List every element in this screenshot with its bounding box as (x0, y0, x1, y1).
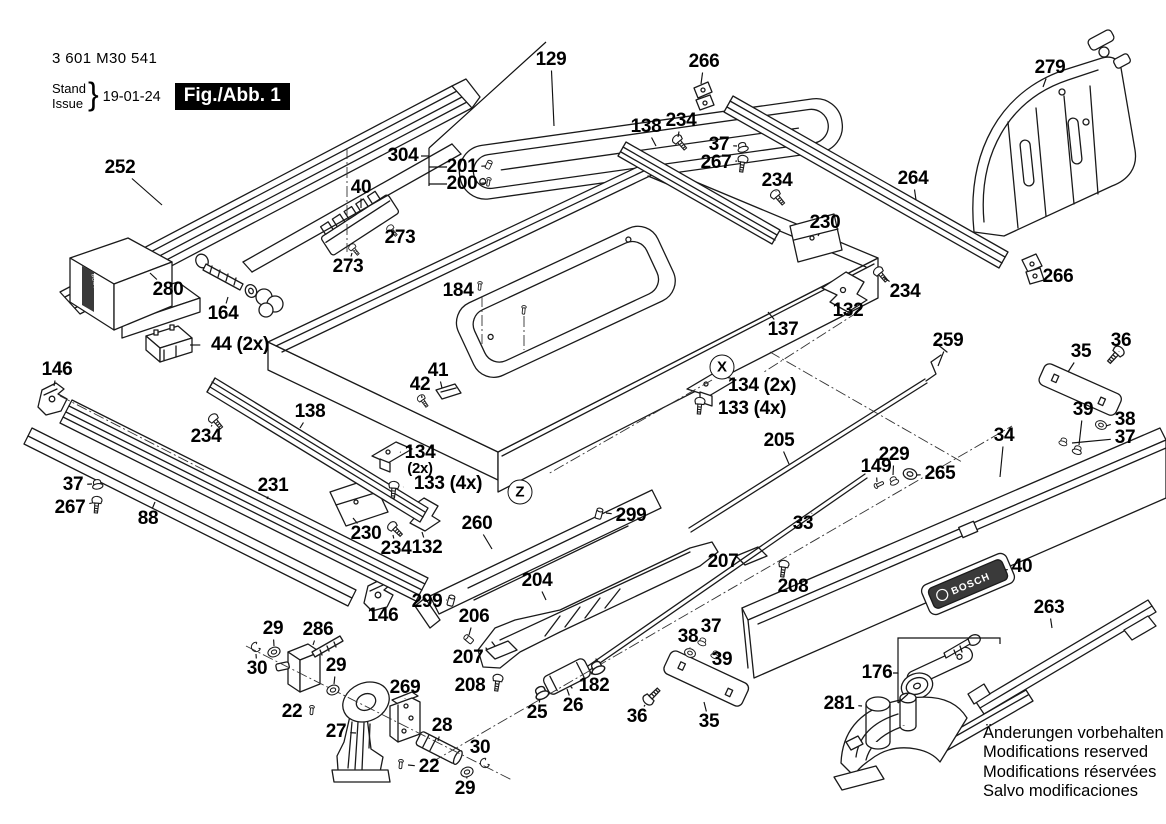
part-label-35: 35 (699, 713, 720, 731)
part-label-208: 208 (455, 677, 486, 695)
part-label-28: 28 (432, 717, 453, 735)
leader-252 (132, 179, 162, 206)
part-label-279: 279 (1035, 59, 1066, 77)
part-label-200: 200 (447, 175, 478, 193)
part-label-38: 38 (678, 628, 699, 646)
part-label-204: 204 (522, 572, 553, 590)
part-clamp-146-left (38, 383, 67, 415)
leader-205 (784, 452, 789, 465)
part-label-266: 266 (689, 53, 720, 71)
part-label-22: 22 (419, 758, 440, 776)
leader-267 (89, 503, 92, 504)
part-label-36: 36 (1111, 332, 1132, 350)
part-label-266: 266 (1043, 268, 1074, 286)
hw-29-washer (267, 645, 282, 658)
part-label-206: 206 (459, 608, 490, 626)
part-label-39: 39 (712, 651, 733, 669)
leader-138 (300, 423, 303, 429)
leader-206 (469, 628, 471, 636)
part-badge-44 (146, 325, 192, 362)
hw-36-screw (641, 685, 663, 707)
hw-149-pin (873, 480, 884, 489)
title-block: 3 601 M30 541 Stand Issue } 19-01-24 Fig… (52, 50, 290, 117)
leader-34 (1000, 447, 1003, 478)
disclaimer-line-fr: Modifications réservées (983, 763, 1164, 782)
part-label-34: 34 (994, 427, 1015, 445)
hw-22-pin (309, 705, 315, 715)
disclaimer-line-de: Änderungen vorbehalten (983, 724, 1164, 743)
part-number: 3 601 M30 541 (52, 50, 290, 67)
part-label-29: 29 (263, 620, 284, 638)
hw-38-washer (1094, 419, 1107, 430)
leader-29 (334, 677, 335, 685)
part-label-132: 132 (833, 302, 864, 320)
hw-29-washer (460, 765, 475, 778)
part-label-39: 39 (1073, 401, 1094, 419)
hw-265-washer (902, 467, 918, 481)
hw-206-grub (463, 634, 474, 644)
callout-X: X (710, 355, 735, 380)
part-label-37: 37 (63, 476, 84, 494)
part-label-304: 304 (388, 147, 419, 165)
part-label-280: 280 (153, 281, 184, 299)
part-label-265: 265 (925, 465, 956, 483)
leader-35 (1068, 363, 1074, 373)
part-label-30: 30 (470, 739, 491, 757)
part-label-234: 234 (762, 172, 793, 190)
callout-Z: Z (508, 480, 533, 505)
part-label-26: 26 (563, 697, 584, 715)
part-clamp-266-right (1022, 254, 1044, 284)
part-label-207: 207 (453, 649, 484, 667)
part-label-234: 234 (666, 112, 697, 130)
leader-260 (483, 535, 492, 550)
part-label-27: 27 (326, 723, 347, 741)
leader-286 (313, 641, 315, 646)
part-label-182: 182 (579, 677, 610, 695)
part-label-37: 37 (701, 618, 722, 636)
part-label-299: 299 (616, 507, 647, 525)
diagram-page: BOSCH (0, 0, 1166, 824)
part-label-29: 29 (326, 657, 347, 675)
part-clamp-266-top (694, 82, 714, 110)
part-label-234: 234 (381, 540, 412, 558)
hw-267-screw (91, 496, 102, 513)
part-label-286: 286 (303, 621, 334, 639)
part-label-40: 40 (351, 179, 372, 197)
leader-266 (701, 73, 703, 85)
hw-22-pin (398, 759, 404, 769)
hw-208-screw (491, 674, 503, 692)
leader-129 (551, 71, 554, 127)
part-label-267: 267 (55, 499, 86, 517)
part-label-22: 22 (282, 703, 303, 721)
leader-263 (1051, 619, 1052, 629)
part-label-205: 205 (764, 432, 795, 450)
part-label-1334x: 133 (4x) (718, 400, 786, 418)
hw-208-screw (777, 560, 789, 578)
part-label-208: 208 (778, 578, 809, 596)
part-label-267: 267 (701, 154, 732, 172)
part-label-273: 273 (385, 229, 416, 247)
part-label-164: 164 (208, 305, 239, 323)
part-hook-259 (926, 355, 941, 381)
hw-39-nut (1072, 444, 1084, 455)
part-label-138: 138 (631, 118, 662, 136)
hw-133-screw (694, 397, 705, 414)
part-bracket-269 (390, 692, 420, 742)
brace-glyph: } (88, 76, 99, 113)
part-label-230: 230 (810, 214, 841, 232)
leader-39 (1079, 421, 1082, 446)
disclaimer-line-en: Modifications reserved (983, 743, 1164, 762)
part-label-1334x: 133 (4x) (414, 475, 482, 493)
part-label-264: 264 (898, 170, 929, 188)
hw-37-nut (697, 637, 707, 647)
part-label-149: 149 (861, 458, 892, 476)
disclaimer: Änderungen vorbehalten Modifications res… (983, 724, 1164, 801)
part-label-299: 299 (412, 593, 443, 611)
part-plate-35-bottom (662, 649, 751, 708)
part-label-176: 176 (862, 664, 893, 682)
figure-label: Fig./Abb. 1 (175, 83, 290, 110)
part-label-25: 25 (527, 704, 548, 722)
part-label-40: 40 (1012, 558, 1033, 576)
part-label-146: 146 (368, 607, 399, 625)
part-label-263: 263 (1034, 599, 1065, 617)
part-label-230: 230 (351, 525, 382, 543)
leader-299 (606, 513, 612, 514)
disclaimer-line-es: Salvo modificaciones (983, 782, 1164, 801)
part-label-281: 281 (824, 695, 855, 713)
part-label-207: 207 (708, 553, 739, 571)
part-label-234: 234 (191, 428, 222, 446)
part-chip-207-right (736, 547, 767, 565)
hw-29-washer (326, 683, 341, 696)
part-label-37: 37 (1115, 429, 1136, 447)
part-label-184: 184 (443, 282, 474, 300)
stand-label: Stand (52, 82, 86, 96)
part-label-134: 134(2x) (405, 444, 436, 476)
leader-37 (1072, 439, 1111, 443)
hw-37-nut (1058, 437, 1068, 447)
hw-234-screw (386, 520, 405, 539)
part-label-41: 41 (428, 362, 449, 380)
issue-label: Issue (52, 97, 86, 111)
part-label-132: 132 (412, 539, 443, 557)
part-label-146: 146 (42, 361, 73, 379)
part-label-273: 273 (333, 258, 364, 276)
part-label-35: 35 (1071, 343, 1092, 361)
part-label-137: 137 (768, 321, 799, 339)
part-label-88: 88 (138, 510, 159, 528)
part-label-36: 36 (627, 708, 648, 726)
part-label-234: 234 (890, 283, 921, 301)
part-label-138: 138 (295, 403, 326, 421)
leader-204 (542, 592, 546, 601)
part-label-259: 259 (933, 332, 964, 350)
part-label-252: 252 (105, 159, 136, 177)
part-label-33: 33 (793, 515, 814, 533)
part-label-1342x: 134 (2x) (728, 377, 796, 395)
hw-30-cclip (250, 641, 261, 653)
part-label-30: 30 (247, 660, 268, 678)
leader-22 (408, 765, 415, 766)
part-label-231: 231 (258, 477, 289, 495)
part-label-269: 269 (390, 679, 421, 697)
part-label-260: 260 (462, 515, 493, 533)
part-label-29: 29 (455, 780, 476, 798)
issue-date: 19-01-24 (103, 89, 161, 105)
leader-259 (938, 352, 944, 367)
part-label-442x: 44 (2x) (211, 336, 269, 354)
part-label-129: 129 (536, 51, 567, 69)
